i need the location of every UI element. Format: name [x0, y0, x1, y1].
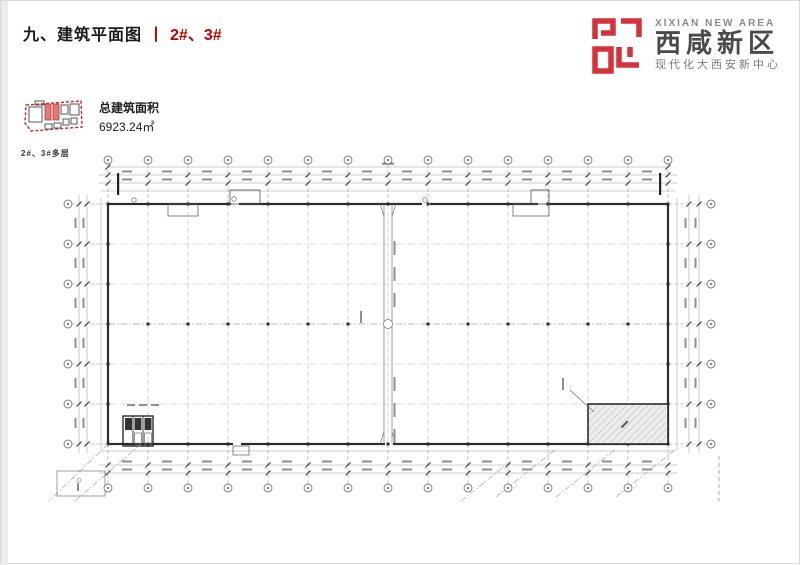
dim-text — [162, 179, 172, 181]
column-mark — [427, 443, 430, 446]
column-mark — [387, 443, 390, 446]
stair-note-text — [127, 404, 135, 406]
dim-text — [695, 338, 697, 348]
grid-bubble-label — [667, 159, 669, 161]
title-highlight: 2#、3# — [170, 21, 222, 45]
title-separator: 丨 — [148, 21, 164, 45]
column-mark — [467, 323, 470, 326]
dim-text — [522, 469, 532, 471]
dim-text — [685, 258, 687, 268]
dim-text — [242, 469, 252, 471]
dim-text — [695, 258, 697, 268]
column-mark — [347, 443, 350, 446]
dim-text — [482, 461, 492, 463]
floor-plan-area — [41, 149, 761, 514]
dim-text — [202, 179, 212, 181]
grid-bubble-label — [507, 159, 509, 161]
logo-name-cn: 西咸新区 — [655, 29, 781, 59]
dim-text — [242, 461, 252, 463]
grid-bubble-label — [67, 363, 69, 365]
corridor-note-text — [394, 241, 396, 255]
dim-text — [162, 469, 172, 471]
grid-bubble-label — [187, 159, 189, 161]
dim-text — [122, 461, 132, 463]
grid-bubble-label — [710, 363, 712, 365]
column-mark — [427, 203, 430, 206]
dim-text — [402, 179, 412, 181]
canopy-bottom — [233, 446, 249, 455]
dim-text — [282, 461, 292, 463]
dim-text — [75, 338, 77, 348]
dim-text — [522, 461, 532, 463]
vestibule-top-right — [531, 190, 549, 204]
column-mark — [467, 443, 470, 446]
dim-text — [282, 469, 292, 471]
column-mark — [627, 323, 630, 326]
diagonal-leader — [461, 461, 511, 501]
grid-bubble-label — [710, 243, 712, 245]
column-mark — [227, 443, 230, 446]
column-mark — [507, 443, 510, 446]
grid-bubble-label — [710, 403, 712, 405]
dim-text — [482, 171, 492, 173]
column-mark — [227, 323, 230, 326]
floor-plan-drawing — [41, 149, 761, 514]
corridor-mid-label — [360, 311, 362, 323]
column-mark — [267, 203, 270, 206]
dim-text — [242, 171, 252, 173]
grid-bubble-label — [307, 487, 309, 489]
dim-text — [242, 179, 252, 181]
column-mark — [547, 443, 550, 446]
xixian-seal-icon — [587, 13, 645, 77]
column-mark — [227, 203, 230, 206]
grid-bubble-label — [67, 203, 69, 205]
column-mark — [667, 243, 670, 246]
grid-bubble-label — [710, 283, 712, 285]
dim-text — [322, 171, 332, 173]
dim-text — [362, 179, 372, 181]
column-mark — [667, 283, 670, 286]
wall-label-right — [659, 173, 661, 195]
dim-text — [83, 338, 85, 348]
grid-bubble-label — [147, 487, 149, 489]
grid-bubble-label — [227, 159, 229, 161]
dim-text — [522, 171, 532, 173]
column-mark — [187, 323, 190, 326]
column-mark — [667, 203, 670, 206]
dim-text — [83, 298, 85, 308]
keyplan-building-2 — [45, 104, 51, 120]
column-mark — [187, 443, 190, 446]
dim-text — [202, 469, 212, 471]
dim-text — [322, 461, 332, 463]
dim-text — [685, 298, 687, 308]
dim-text — [562, 469, 572, 471]
grid-bubble-label — [710, 323, 712, 325]
dim-text — [122, 469, 132, 471]
dim-text — [562, 179, 572, 181]
grid-bubble-label — [627, 159, 629, 161]
column-mark — [107, 203, 110, 206]
column-mark — [667, 323, 670, 326]
column-mark — [427, 323, 430, 326]
dim-text — [695, 378, 697, 388]
column-mark — [587, 203, 590, 206]
column-mark — [507, 323, 510, 326]
grid-bubble-label — [267, 159, 269, 161]
column-mark — [107, 403, 110, 406]
total-area-value: 6923.24㎡ — [99, 118, 159, 135]
stair-flight — [135, 418, 142, 430]
dim-text — [695, 218, 697, 228]
grid-bubble-label — [547, 487, 549, 489]
dim-text — [642, 179, 652, 181]
keyplan-minimap — [21, 97, 85, 145]
dim-text — [362, 461, 372, 463]
dim-text — [322, 179, 332, 181]
corridor-note-text — [394, 429, 396, 443]
dim-text — [75, 298, 77, 308]
dim-text — [362, 469, 372, 471]
dim-text — [695, 418, 697, 428]
grid-bubble-label — [227, 487, 229, 489]
stair-note-text — [151, 404, 159, 406]
corridor-note-text — [394, 293, 396, 307]
dim-text — [602, 469, 612, 471]
page-title: 九、建筑平面图 丨 2#、3# — [23, 21, 222, 45]
dim-text — [442, 171, 452, 173]
dim-text — [75, 418, 77, 428]
column-mark — [267, 323, 270, 326]
grid-bubble-label — [307, 159, 309, 161]
dim-text — [482, 469, 492, 471]
stair-flight — [125, 418, 132, 430]
dim-text — [642, 461, 652, 463]
detail-box-text — [77, 483, 79, 491]
dim-text — [83, 418, 85, 428]
dim-text — [83, 258, 85, 268]
dim-text — [602, 461, 612, 463]
column-mark — [627, 203, 630, 206]
corridor-note-text — [394, 403, 396, 417]
dim-text — [202, 171, 212, 173]
column-mark — [107, 363, 110, 366]
dim-text — [442, 179, 452, 181]
grid-bubble-label — [67, 243, 69, 245]
column-mark — [107, 323, 110, 326]
grid-bubble-label — [107, 159, 109, 161]
column-mark — [667, 363, 670, 366]
dim-text — [75, 218, 77, 228]
keyplan-building-3 — [53, 104, 59, 120]
grid-bubble-label — [347, 487, 349, 489]
grid-bubble-label — [667, 487, 669, 489]
mezzanine-hatch — [588, 404, 668, 444]
grid-bubble-label — [467, 159, 469, 161]
stair-flight — [135, 433, 142, 444]
grid-bubble-label — [67, 323, 69, 325]
corridor-note-text — [394, 377, 396, 391]
dim-text — [442, 469, 452, 471]
dim-text — [122, 179, 132, 181]
grid-bubble-label — [187, 487, 189, 489]
grid-bubble-label — [67, 403, 69, 405]
grid-bubble-label — [587, 487, 589, 489]
dim-text — [75, 378, 77, 388]
door-tag — [232, 197, 236, 201]
room-top-left — [168, 204, 198, 216]
dim-text — [685, 418, 687, 428]
column-mark — [147, 323, 150, 326]
dim-text — [202, 461, 212, 463]
detail-box — [57, 471, 105, 496]
dim-text — [83, 218, 85, 228]
grid-bubble-label — [427, 487, 429, 489]
diagonal-leader — [49, 444, 108, 501]
room-top-right — [513, 204, 549, 216]
grid-bubble-label — [467, 487, 469, 489]
column-mark — [547, 323, 550, 326]
dim-text — [282, 171, 292, 173]
grid-bubble-label — [267, 487, 269, 489]
dim-text — [685, 378, 687, 388]
dim-text — [522, 179, 532, 181]
dim-text — [642, 469, 652, 471]
total-area-label: 总建筑面积 — [99, 99, 159, 116]
column-mark — [387, 203, 390, 206]
logo-tagline: 现代化大西安新中心 — [655, 59, 781, 72]
column-mark — [347, 323, 350, 326]
grid-bubble-label — [710, 203, 712, 205]
dim-text — [685, 218, 687, 228]
column-mark — [307, 203, 310, 206]
dim-text — [83, 378, 85, 388]
grid-bubble-label — [347, 159, 349, 161]
grid-bubble-label — [67, 283, 69, 285]
column-mark — [107, 243, 110, 246]
grid-bubble-label — [67, 443, 69, 445]
title-text: 九、建筑平面图 — [23, 21, 142, 45]
dim-text — [602, 179, 612, 181]
dim-text — [322, 469, 332, 471]
grid-bubble-label — [710, 443, 712, 445]
dim-text — [402, 469, 412, 471]
mezzanine-leader — [570, 390, 594, 412]
grid-bubble-label — [387, 159, 389, 161]
column-mark — [587, 323, 590, 326]
dim-text — [402, 171, 412, 173]
grid-bubble-label — [587, 159, 589, 161]
dim-text — [642, 171, 652, 173]
dim-text — [442, 461, 452, 463]
stair-flight — [145, 418, 152, 430]
detail-box-tag — [77, 478, 81, 482]
dim-text — [685, 338, 687, 348]
dim-text — [362, 171, 372, 173]
grid-bubble-label — [627, 487, 629, 489]
dim-text — [402, 461, 412, 463]
mezzanine-leader-text — [562, 378, 564, 390]
column-mark — [307, 323, 310, 326]
grid-bubble-label — [507, 487, 509, 489]
grid-bubble-label — [427, 159, 429, 161]
column-mark — [147, 203, 150, 206]
column-mark — [307, 443, 310, 446]
corridor-note-text — [394, 267, 396, 281]
wall-label-left — [117, 173, 119, 195]
grid-bubble-label — [107, 487, 109, 489]
grid-bubble-label — [547, 159, 549, 161]
dim-text — [75, 258, 77, 268]
dim-text — [562, 461, 572, 463]
corridor-mid-joint — [384, 320, 393, 329]
column-mark — [467, 203, 470, 206]
dim-text — [162, 461, 172, 463]
dim-text — [695, 298, 697, 308]
grid-bubble-label — [387, 487, 389, 489]
window-edge-strip — [1, 1, 8, 565]
dim-text — [602, 171, 612, 173]
dim-text — [122, 171, 132, 173]
xixian-logo: XIXIAN NEW AREA 西咸新区 现代化大西安新中心 — [587, 13, 781, 77]
column-mark — [107, 283, 110, 286]
stair-note-text — [139, 404, 147, 406]
dim-text — [282, 179, 292, 181]
door-tag — [423, 198, 427, 202]
dim-text — [562, 171, 572, 173]
dim-text — [162, 171, 172, 173]
column-mark — [507, 203, 510, 206]
column-mark — [347, 203, 350, 206]
door-tag — [132, 198, 136, 202]
column-mark — [267, 443, 270, 446]
dim-text — [482, 179, 492, 181]
grid-bubble-label — [147, 159, 149, 161]
